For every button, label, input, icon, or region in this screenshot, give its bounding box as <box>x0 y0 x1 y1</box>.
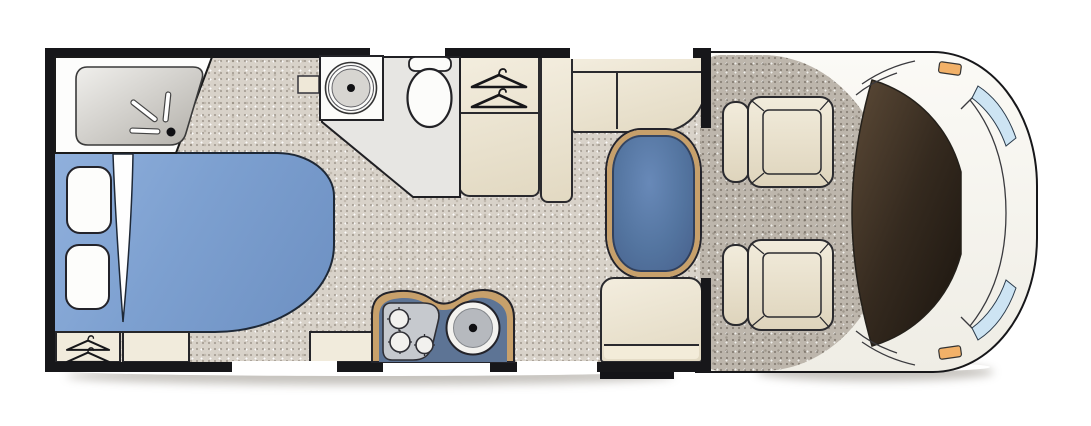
window-top-bathroom <box>370 47 445 59</box>
wardrobe-unit <box>458 56 540 197</box>
wall-cab-partition-lower <box>701 278 711 372</box>
entry-door-opening <box>517 361 597 373</box>
hatch-bottom-bed <box>232 361 337 373</box>
bench-front-panel <box>604 344 699 359</box>
pillow-lower <box>65 244 110 310</box>
dinette-corner-bench <box>571 55 707 133</box>
forward-bench <box>600 277 703 363</box>
pillow-upper <box>66 166 112 234</box>
bench-cushion-divider <box>616 73 618 129</box>
bench-back-seam <box>573 71 703 73</box>
motorhome-floorplan <box>0 0 1091 426</box>
wall-bottom <box>45 362 711 372</box>
underbed-cabinet <box>122 331 190 363</box>
dinette-side-seat <box>540 55 573 203</box>
window-bottom-kitchen <box>383 361 490 373</box>
underbed-cabinet-2 <box>309 331 373 363</box>
wall-left-rear <box>45 48 55 372</box>
wall-cab-partition-upper <box>701 48 711 128</box>
window-top-dinette <box>570 47 693 59</box>
wardrobe-shelf-divider <box>459 112 539 114</box>
dinette-table <box>607 130 700 277</box>
underbed-hanger-wardrobe <box>55 331 121 363</box>
